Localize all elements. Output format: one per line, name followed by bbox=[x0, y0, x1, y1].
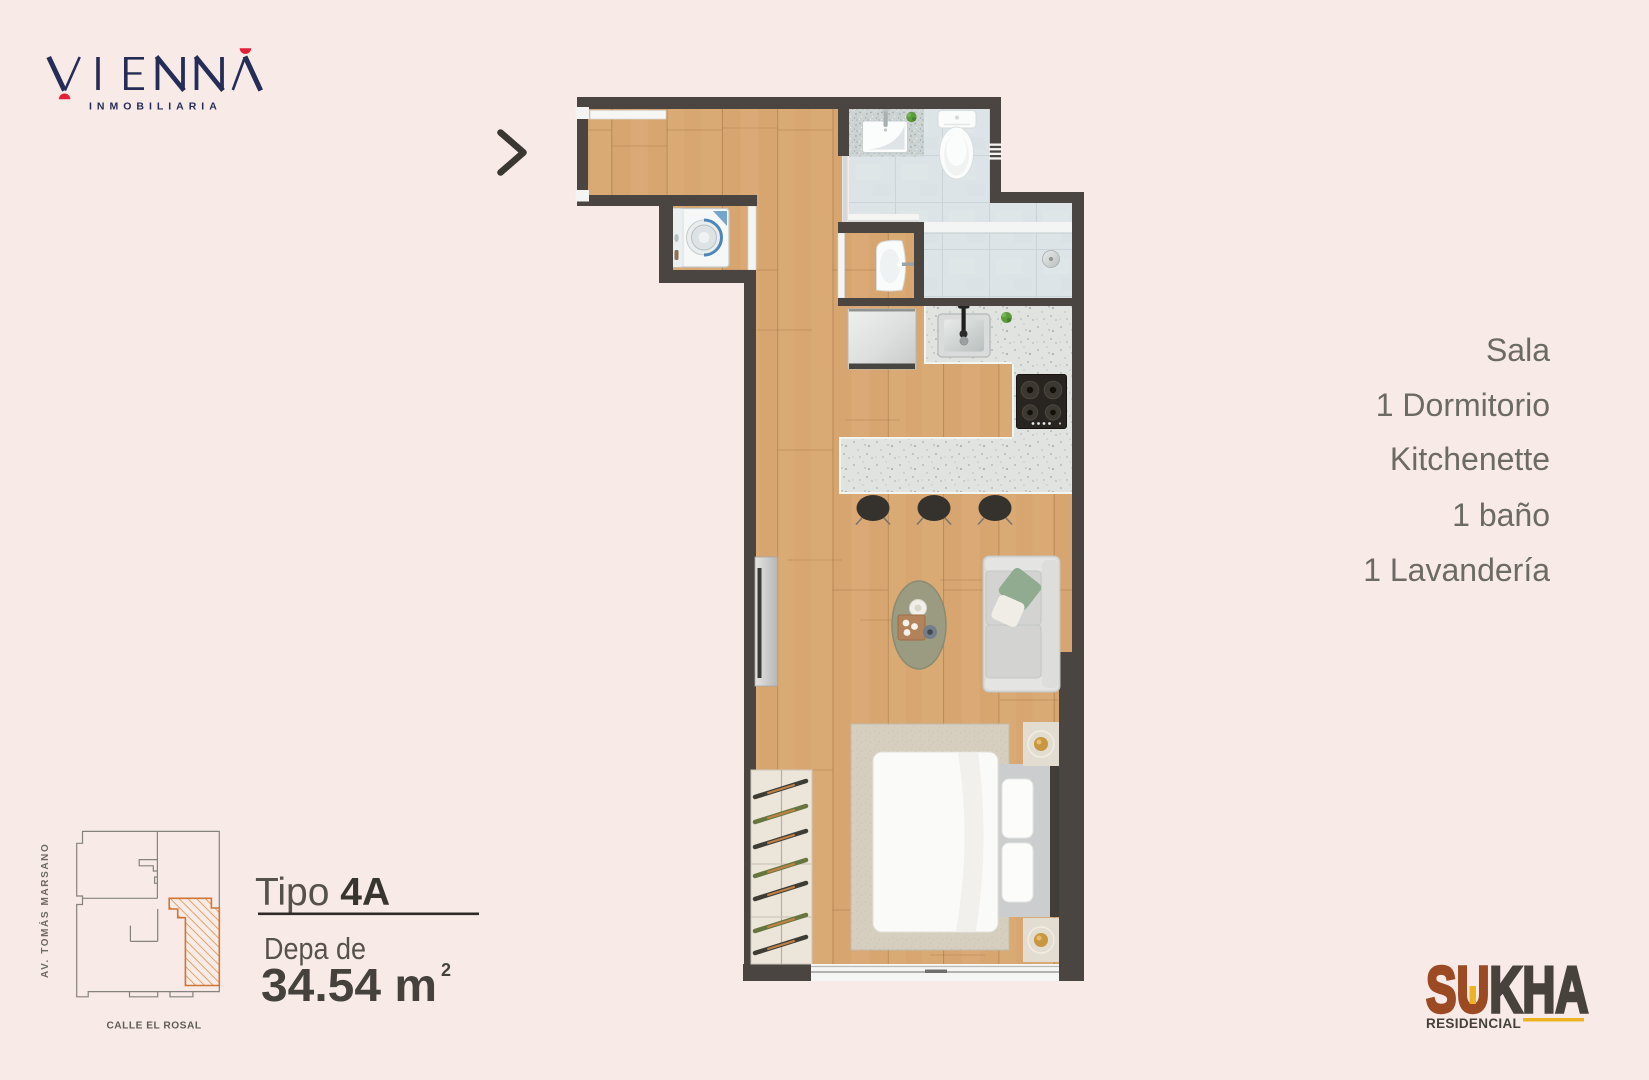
svg-text:CALLE EL ROSAL: CALLE EL ROSAL bbox=[106, 1021, 201, 1032]
svg-text:34.54 m: 34.54 m bbox=[261, 959, 437, 1011]
svg-text:1 Dormitorio: 1 Dormitorio bbox=[1376, 387, 1550, 423]
svg-text:Sala: Sala bbox=[1486, 332, 1550, 368]
svg-text:1 Lavandería: 1 Lavandería bbox=[1363, 552, 1550, 588]
svg-text:SU: SU bbox=[1426, 953, 1490, 1026]
svg-text:RESIDENCIAL: RESIDENCIAL bbox=[1426, 1016, 1522, 1031]
svg-text:KHA: KHA bbox=[1489, 953, 1588, 1026]
svg-text:INMOBILIARIA: INMOBILIARIA bbox=[89, 101, 221, 113]
svg-text:Tipo 4A: Tipo 4A bbox=[255, 871, 390, 914]
svg-text:2: 2 bbox=[441, 960, 451, 980]
svg-text:AV. TOMÁS MARSANO: AV. TOMÁS MARSANO bbox=[38, 843, 51, 978]
svg-text:Kitchenette: Kitchenette bbox=[1390, 441, 1550, 477]
svg-text:1 baño: 1 baño bbox=[1452, 497, 1550, 533]
